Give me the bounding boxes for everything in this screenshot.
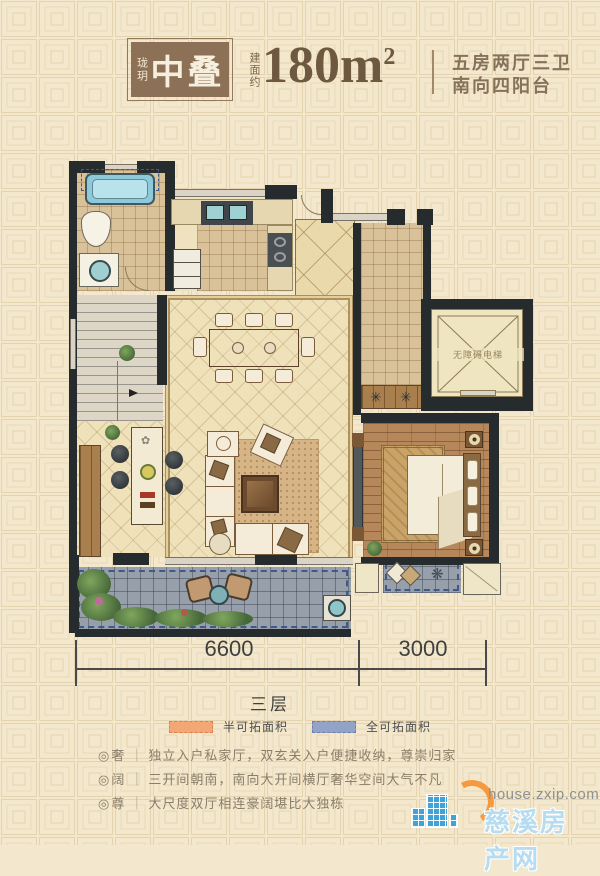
sofa-pillow (209, 460, 230, 481)
decor-item (140, 502, 155, 508)
kitchen-sink (201, 201, 253, 225)
wall (489, 413, 499, 565)
window (297, 557, 353, 565)
plant (105, 425, 120, 440)
buildings-icon (426, 794, 448, 828)
feature-text: 独立入户私家厅，双玄关入户便捷收纳，尊崇归家 (148, 748, 456, 763)
spec-rooms: 五房两厅三卫 (452, 52, 572, 75)
dimension-value-left: 6600 (129, 636, 329, 662)
balcony-flowers (95, 597, 103, 605)
unit-type-title: 中叠 (151, 45, 225, 94)
bathroom-vanity (79, 253, 119, 287)
wall (265, 185, 297, 199)
area-superscript: 2 (383, 44, 395, 70)
coffee-table (241, 475, 279, 513)
bullet-icon: ◎ (98, 772, 110, 787)
brand-name: 珑玥 (136, 57, 147, 83)
brand-badge: 珑玥 中叠 (127, 38, 233, 101)
wall (321, 189, 333, 223)
pinwheel-icon: ✳ (370, 390, 382, 404)
dining-chair (215, 313, 233, 327)
wall-pier (352, 527, 364, 541)
feature-separator: ｜ (130, 748, 144, 763)
watermark-site-name: 慈溪房产网 (484, 802, 593, 876)
flower-icon: ✿ (141, 436, 150, 447)
bed (407, 455, 465, 535)
feature-text: 大尺度双厅相连豪阔堪比大独栋 (148, 796, 344, 811)
dimension-line (75, 668, 485, 670)
wall-pier (352, 433, 364, 447)
dining-table (209, 329, 299, 367)
balcony-planting (203, 611, 253, 627)
elevator-door (460, 390, 496, 396)
plant (119, 345, 135, 361)
sofa-bottom (235, 523, 309, 555)
feature-separator: ｜ (130, 796, 144, 811)
stool (165, 451, 183, 469)
dining-chair (275, 313, 293, 327)
headboard (463, 453, 481, 537)
balcony-table (209, 585, 229, 605)
dining-chair (193, 337, 207, 357)
washbasin (89, 260, 111, 282)
kitchen-floor (197, 225, 267, 291)
snowflake-plant-icon: ❋ (431, 567, 444, 582)
floor-plan: ✳ ✳ 无障碍电梯 (69, 149, 531, 643)
wall (417, 209, 433, 225)
dimension-annotation: 6600 3000 (69, 630, 531, 690)
elevator: 无障碍电梯 (431, 309, 523, 397)
tv-cabinet (353, 445, 363, 529)
legend-label-full-extend: 全可拓面积 (366, 718, 431, 735)
balcony-flowers (181, 609, 188, 616)
legend: 半可拓面积 全可拓面积 (150, 718, 450, 735)
dining-chair (275, 369, 293, 383)
area-value: 180m2 (262, 36, 395, 95)
legend-label-half-extend: 半可拓面积 (223, 718, 288, 735)
ac-platform (355, 563, 379, 593)
console-table: ✿ (131, 427, 163, 525)
legend-swatch-half-extend (169, 721, 213, 733)
sofa-pillow (277, 527, 304, 554)
window (70, 319, 76, 369)
nightstand (465, 431, 483, 448)
dining-chair (215, 369, 233, 383)
fruit-plate (140, 464, 156, 480)
wall (423, 225, 431, 303)
plant (367, 541, 382, 556)
laundry-basin (323, 595, 351, 621)
feature-tag: 奢 (111, 748, 125, 763)
sideboard (79, 445, 101, 557)
entry-door-swing (301, 195, 321, 215)
feature-tag: 阔 (111, 772, 125, 787)
entry-threshold: ✳ ✳ (361, 385, 423, 409)
watermark-url[interactable]: house.zxip.com (488, 786, 599, 803)
wall (353, 223, 361, 415)
feature-separator: ｜ (130, 772, 144, 787)
buildings-icon (449, 814, 458, 828)
corridor (361, 223, 423, 385)
header-divider (432, 50, 434, 94)
side-table (209, 533, 231, 555)
decor-item (140, 492, 155, 498)
stool (111, 445, 129, 463)
elevator-label: 无障碍电梯 (432, 348, 524, 361)
dining-chair (245, 369, 263, 383)
buildings-icon (411, 808, 425, 828)
area-prefix: 建面约 (246, 52, 262, 88)
spec-orientation: 南向四阳台 (452, 75, 572, 98)
balcony-planting (113, 607, 159, 627)
dimension-value-right: 3000 (358, 636, 488, 662)
stool (165, 477, 183, 495)
wall (387, 209, 405, 225)
pinwheel-icon: ✳ (400, 390, 412, 404)
stair-direction-arrow (129, 389, 138, 397)
ac-platform (463, 563, 501, 595)
window (333, 213, 389, 221)
flyer: 珑玥 中叠 建面约 180m2 五房两厅三卫 南向四阳台 ✳ ✳ (0, 0, 600, 845)
unit-specs: 五房两厅三卫 南向四阳台 (452, 52, 572, 98)
refrigerator (173, 249, 201, 289)
dining-chair (245, 313, 263, 327)
dimension-tick (75, 640, 77, 686)
floor-level-label: 三层 (180, 690, 360, 715)
bullet-icon: ◎ (98, 796, 110, 811)
wall (69, 555, 79, 633)
feature-item: ◎奢｜独立入户私家厅，双玄关入户便捷收纳，尊崇归家 (98, 744, 518, 768)
wall (157, 295, 167, 385)
stool (111, 471, 129, 489)
wall (113, 553, 149, 565)
wall (361, 413, 497, 423)
nightstand (465, 539, 483, 556)
dining-chair (301, 337, 315, 357)
bathtub (85, 173, 155, 205)
watermark: house.zxip.com 慈溪房产网 (398, 782, 593, 840)
feature-tag: 尊 (111, 796, 125, 811)
legend-swatch-full-extend (312, 721, 356, 733)
stove (268, 233, 292, 267)
bullet-icon: ◎ (98, 748, 110, 763)
armchair (207, 431, 239, 457)
window (175, 189, 265, 197)
window (165, 557, 255, 565)
area-number: 180m (262, 37, 383, 94)
